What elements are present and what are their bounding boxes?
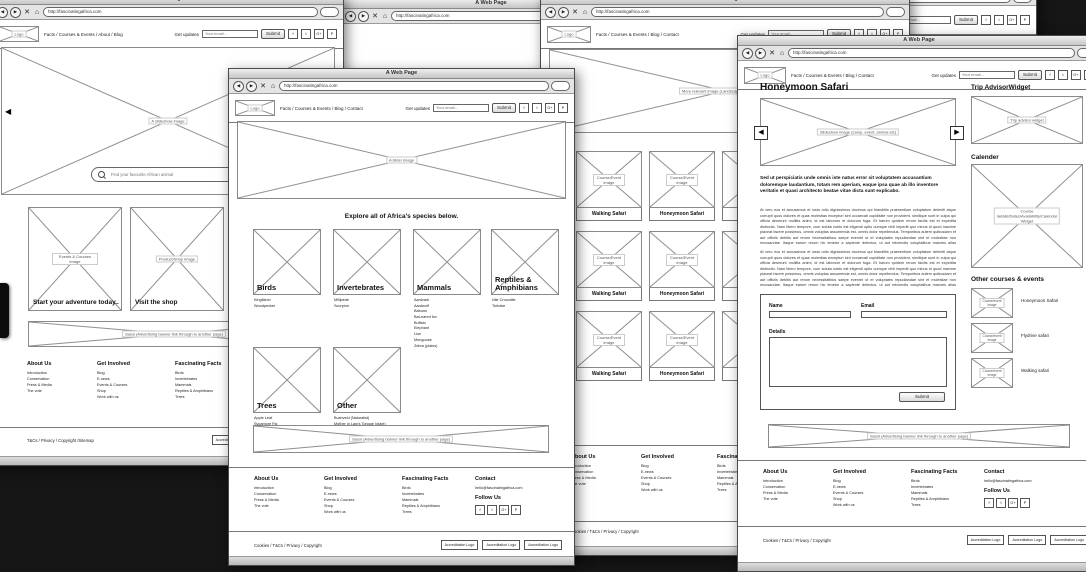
footer-heading: Get Involved: [833, 469, 911, 475]
course-title[interactable]: Honeymoon Safari: [649, 208, 715, 221]
legal-links[interactable]: T&Cs / Privacy / Copyright /Sitemap: [27, 438, 94, 443]
trip-advisor-caption: Trip advisor widget: [1007, 117, 1046, 124]
footer-links[interactable]: Introduction Conservation Press & Media …: [571, 464, 641, 488]
other-course-label[interactable]: Honeymoon Safari: [1021, 298, 1058, 303]
twitter-icon[interactable]: t: [532, 103, 542, 113]
card-label[interactable]: Visit the shop: [135, 299, 178, 306]
ad-banner-caption: Sasol (Advertising banner link through t…: [349, 436, 453, 443]
hero-caption: A slideshow image: [148, 118, 187, 125]
url-bar[interactable]: http://fascinatingafrica.com: [43, 7, 318, 17]
newsletter-signup: Get updates Submit f t G+ P: [931, 70, 1086, 81]
course-image: Course/Event image: [576, 151, 642, 208]
other-course-caption: Course/event image: [980, 298, 1005, 308]
search-icon: [98, 171, 105, 178]
other-course-item[interactable]: Course/event image Walking safari: [971, 358, 1083, 388]
browser-toolbar: ◀ ▶ ✕ ⌂ http://fascinatingafrica.com: [738, 46, 1086, 61]
pinterest-icon[interactable]: P: [1020, 15, 1030, 25]
category-links[interactable]: Aardvark Aardwolf Baboon Bat-eared fox B…: [414, 298, 437, 349]
footer-col-involved: Get Involved Blog E-news Events & Course…: [641, 454, 717, 493]
course-image-caption: Course/Event image: [593, 174, 625, 186]
other-course-item[interactable]: Course/event image Flydrive safari: [971, 323, 1083, 353]
other-course-label[interactable]: Flydrive safari: [1021, 333, 1049, 338]
species-category-mammals[interactable]: Mammals Aardvark Aardwolf Baboon Bat-ear…: [413, 229, 481, 295]
course-card[interactable]: Course/Event image Honeymoon Safari: [649, 311, 715, 368]
main-nav[interactable]: Facts / Courses & Events / Blog / Contac…: [280, 106, 363, 111]
course-image-caption: Course/Event image: [593, 334, 625, 346]
browser-toolbar: ◀ ▶ ✕ ⌂ http://fascinatingafrica.com: [0, 5, 343, 20]
forward-icon[interactable]: ▶: [10, 7, 21, 18]
category-name: Trees: [257, 402, 277, 410]
window-status-bar: [229, 556, 574, 565]
ad-banner[interactable]: Sasol (Advertising banner link through t…: [768, 424, 1070, 448]
footer-links[interactable]: Blog E-news Events & Courses Shop Work w…: [324, 486, 402, 515]
slideshow-next-button[interactable]: ▶: [950, 126, 964, 140]
logo-image: Logo: [235, 100, 275, 116]
twitter-icon[interactable]: t: [1058, 70, 1068, 80]
logo-image: Logo: [744, 67, 786, 84]
card-label[interactable]: Start your adventure today..: [33, 299, 119, 306]
footer-heading: About Us: [254, 476, 324, 482]
course-image: Course/Event image: [576, 231, 642, 288]
follow-us-heading: Follow Us: [984, 488, 1086, 494]
calendar-widget[interactable]: Course details/Dates/Availability/Calend…: [971, 164, 1083, 268]
footer-links[interactable]: Birds Invertebrates Mammals Reptiles & A…: [911, 479, 984, 508]
logo-image: Logo: [547, 26, 591, 43]
category-image: Invertebrates: [333, 229, 401, 295]
submit-button[interactable]: Submit: [1018, 70, 1042, 81]
accreditation-logo-button[interactable]: Accreditation Logo: [967, 535, 1005, 545]
legal-bar: Cookies / T&Cs / Privacy / Copyright Acc…: [738, 526, 1086, 553]
accreditation-logo-button[interactable]: Accreditation Logo: [1050, 535, 1086, 545]
body-paragraph: At vero eos et accusamus et iusto odio d…: [760, 208, 956, 246]
calendar-heading: Calender: [971, 154, 999, 161]
category-image: Other: [333, 347, 401, 413]
footer-heading: Fascinating Facts: [402, 476, 475, 482]
category-image: Mammals: [413, 229, 481, 295]
home-icon[interactable]: ⌂: [381, 12, 389, 21]
course-title[interactable]: Walking Safari: [576, 368, 642, 381]
card-caption: Events & Courses image: [52, 253, 98, 265]
footer-links[interactable]: Blog E-news Events & Courses Shop Work w…: [97, 371, 175, 400]
email-field[interactable]: [959, 71, 1015, 79]
back-icon[interactable]: ◀: [233, 81, 244, 92]
contact-email[interactable]: hello@fascinatingafrica.com: [475, 486, 574, 490]
card-caption: Product/Shop image: [156, 256, 198, 263]
details-textarea[interactable]: [769, 337, 947, 387]
footer-heading: Get Involved: [641, 454, 717, 460]
form-submit-button[interactable]: Submit: [899, 392, 945, 403]
url-bar[interactable]: http://fascinatingafrica.com: [279, 81, 549, 91]
footer-col-involved: Get Involved Blog E-news Events & Course…: [833, 469, 911, 508]
footer-heading: Contact: [984, 469, 1086, 475]
events-courses-card[interactable]: Events & Courses image Start your advent…: [28, 207, 122, 311]
category-name: Invertebrates: [337, 284, 384, 292]
other-course-label[interactable]: Walking safari: [1021, 368, 1049, 373]
shop-card[interactable]: Product/Shop image Visit the shop: [130, 207, 224, 311]
hero-caption: A slider image: [386, 157, 417, 164]
main-nav[interactable]: Facts / Courses & Events / Blog / Contac…: [596, 32, 679, 37]
browser-window-detail: A Web Page ◀ ▶ ✕ ⌂ http://fascinatingafr…: [737, 35, 1086, 572]
hero-slider-image: A slider image: [237, 121, 566, 199]
url-bar[interactable]: http://fascinatingafrica.com: [591, 7, 884, 17]
course-card[interactable]: Course/Event image Walking Safari: [576, 311, 642, 368]
twitter-icon[interactable]: t: [301, 29, 311, 39]
footer-links[interactable]: Birds Invertebrates Mammals Reptiles & A…: [402, 486, 475, 515]
logo-image: Logo: [0, 26, 39, 42]
species-category-birds[interactable]: Birds Kingfisher Woodpecker: [253, 229, 321, 295]
course-title[interactable]: Walking Safari: [576, 288, 642, 301]
footer-heading: Get Involved: [324, 476, 402, 482]
side-tab[interactable]: [0, 283, 9, 338]
accreditation-logo-button[interactable]: Accreditation Logo: [524, 540, 562, 550]
close-icon[interactable]: ✕: [571, 8, 579, 17]
googleplus-icon[interactable]: G+: [1007, 15, 1017, 25]
close-icon[interactable]: ✕: [23, 8, 31, 17]
footer-links[interactable]: Blog E-news Events & Courses Shop Work w…: [641, 464, 717, 493]
species-category-reptiles[interactable]: Reptiles & Amphibians Nile Crocodile Tor…: [491, 229, 559, 295]
legal-links[interactable]: Cookies / T&Cs / Privacy / Copyright: [571, 529, 639, 534]
updates-label: Get updates: [174, 32, 199, 37]
footer-col-contact: Contact hello@fascinatingafrica.com Foll…: [475, 476, 574, 515]
updates-label: Get updates: [405, 106, 430, 111]
page-title: Honeymoon Safari: [760, 82, 848, 93]
main-nav[interactable]: Facts / Courses & Events / Blog / Contac…: [791, 73, 874, 78]
course-title[interactable]: Honeymoon Safari: [649, 288, 715, 301]
forward-icon[interactable]: ▶: [558, 7, 569, 18]
updates-label: Get updates: [931, 73, 956, 78]
contact-email[interactable]: hello@fascinatingafrica.com: [984, 479, 1086, 483]
follow-us-heading: Follow Us: [475, 495, 574, 501]
species-heading: Explore all of Africa's species below.: [229, 213, 574, 220]
slideshow-caption: Slideshow image (camp, event, animal etc…: [817, 129, 899, 136]
facebook-icon[interactable]: f: [288, 29, 298, 39]
forward-icon[interactable]: ▶: [246, 81, 257, 92]
googleplus-icon[interactable]: G+: [1008, 498, 1018, 508]
footer-col-involved: Get Involved Blog E-news Events & Course…: [97, 361, 175, 400]
forward-icon[interactable]: ▶: [358, 11, 369, 22]
slideshow-prev-button[interactable]: ◀: [754, 126, 768, 140]
footer-col-about: About Us Introduction Conservation Press…: [763, 469, 833, 508]
facebook-icon[interactable]: f: [984, 498, 994, 508]
pinterest-icon[interactable]: P: [1020, 498, 1030, 508]
category-name: Reptiles & Amphibians: [495, 276, 558, 292]
search-input[interactable]: [109, 171, 236, 178]
accreditation-logo-button[interactable]: Accreditation Logo: [441, 540, 479, 550]
email-field[interactable]: [433, 104, 489, 112]
footer-heading: Contact: [475, 476, 574, 482]
site-footer: About Us Introduction Conservation Press…: [229, 467, 574, 515]
footer-col-facts: Fascinating Facts Birds Invertebrates Ma…: [402, 476, 475, 515]
category-image: Birds: [253, 229, 321, 295]
course-image: Course/Event image: [649, 311, 715, 368]
url-bar[interactable]: http://fascinatingafrica.com: [788, 48, 1075, 58]
facebook-icon[interactable]: f: [475, 505, 485, 515]
details-label: Details: [769, 329, 785, 335]
footer-links[interactable]: Introduction Conservation Press & Media …: [763, 479, 833, 503]
trip-advisor-widget[interactable]: Trip advisor widget: [971, 96, 1083, 144]
footer-heading: Fascinating Facts: [911, 469, 984, 475]
detail-slideshow-image: Slideshow image (camp, event, animal etc…: [760, 98, 956, 166]
course-card[interactable]: Course/Event image Walking Safari: [576, 231, 642, 288]
logo-caption: Logo: [562, 31, 577, 38]
window-status-bar: [738, 562, 1086, 571]
animal-search[interactable]: [91, 167, 243, 182]
footer-col-facts: Fascinating Facts Birds Invertebrates Ma…: [911, 469, 984, 508]
facebook-icon[interactable]: f: [1045, 70, 1055, 80]
twitter-icon[interactable]: t: [487, 505, 497, 515]
email-label: Email: [861, 303, 874, 309]
footer-col-about: About Us Introduction Conservation Press…: [254, 476, 324, 515]
site-header: Logo Facts / Courses & Events / About / …: [0, 20, 343, 49]
footer-heading: About Us: [27, 361, 97, 367]
other-course-image: Course/event image: [971, 288, 1013, 318]
window-titlebar[interactable]: A Web Page: [738, 36, 1086, 46]
home-icon[interactable]: ⌂: [778, 49, 786, 58]
email-field[interactable]: [861, 311, 947, 318]
main-nav[interactable]: Facts / Courses & Events / About / Blog: [44, 32, 123, 37]
ad-banner[interactable]: Sasol (Advertising banner link through t…: [253, 425, 549, 453]
course-title[interactable]: Walking Safari: [576, 208, 642, 221]
slideshow-prev-icon[interactable]: ◀: [5, 107, 11, 116]
ad-banner-caption: Sasol (Advertising banner link through t…: [867, 433, 971, 440]
site-footer: About Us Introduction Conservation Press…: [738, 460, 1086, 508]
category-image: Reptiles & Amphibians: [491, 229, 559, 295]
home-icon[interactable]: ⌂: [269, 82, 277, 91]
home-icon[interactable]: ⌂: [33, 8, 41, 17]
pinterest-icon[interactable]: P: [558, 103, 568, 113]
other-course-caption: Course/event image: [980, 333, 1005, 343]
course-card[interactable]: Course/Event image Honeymoon Safari: [649, 231, 715, 288]
logo-caption: Logo: [758, 72, 773, 79]
back-icon[interactable]: ◀: [742, 48, 753, 59]
pinterest-icon[interactable]: P: [511, 505, 521, 515]
footer-links[interactable]: Introduction Conservation Press & Media …: [254, 486, 324, 510]
intro-paragraph: Sed ut perspiciatis unde omnis iste natu…: [760, 176, 956, 196]
category-links[interactable]: Nile Crocodile Tortoise: [492, 298, 516, 309]
ad-banner-caption: Sasol (Advertising banner link through t…: [122, 331, 226, 338]
category-links[interactable]: Millipede Scorpion: [334, 298, 349, 309]
browser-toolbar: ◀ ▶ ✕ ⌂ http://fascinatingafrica.com: [541, 5, 909, 20]
footer-col-involved: Get Involved Blog E-news Events & Course…: [324, 476, 402, 515]
species-category-other[interactable]: Other Bushveld (Naturalist) Mother in La…: [333, 347, 401, 413]
course-image-caption: Course/Event image: [666, 254, 698, 266]
course-image-caption: Course/Event image: [666, 334, 698, 346]
googleplus-icon[interactable]: G+: [499, 505, 509, 515]
newsletter-signup: Get updates Submit f t G+ P: [405, 103, 568, 114]
calendar-caption: Course details/Dates/Availability/Calend…: [994, 208, 1060, 225]
course-image-caption: Course/Event image: [593, 254, 625, 266]
course-image: Course/Event image: [649, 231, 715, 288]
logo-caption: Logo: [248, 105, 263, 112]
forward-icon[interactable]: ▶: [755, 48, 766, 59]
other-courses-heading: Other courses & events: [971, 276, 1044, 283]
submit-button[interactable]: Submit: [954, 15, 978, 26]
other-course-item[interactable]: Course/event image Honeymoon Safari: [971, 288, 1083, 318]
category-name: Birds: [257, 284, 276, 292]
site-header: Logo Facts / Courses & Events / Blog / C…: [229, 94, 574, 123]
other-course-image: Course/event image: [971, 323, 1013, 353]
footer-heading: Get Involved: [97, 361, 175, 367]
course-card[interactable]: Course/Event image Honeymoon Safari: [649, 151, 715, 208]
legal-links[interactable]: Cookies / T&Cs / Privacy / Copyright: [763, 538, 831, 543]
search-oval[interactable]: [320, 7, 339, 17]
twitter-icon[interactable]: t: [996, 498, 1006, 508]
googleplus-icon[interactable]: G+: [314, 29, 324, 39]
window-titlebar[interactable]: A Web Page: [229, 69, 574, 79]
logo-caption: Logo: [12, 31, 27, 38]
legal-bar: Cookies / T&Cs / Privacy / Copyright Acc…: [229, 531, 574, 558]
other-course-caption: Course/event image: [980, 368, 1005, 378]
close-icon[interactable]: ✕: [371, 12, 379, 21]
category-name: Mammals: [417, 284, 451, 292]
footer-links[interactable]: Introduction Conservation Press & Media …: [27, 371, 97, 395]
home-icon[interactable]: ⌂: [581, 8, 589, 17]
accreditation-logo-button[interactable]: Accreditation Logo: [482, 540, 520, 550]
course-image: Course/Event image: [576, 311, 642, 368]
search-oval[interactable]: [886, 7, 905, 17]
course-image: Course/Event image: [649, 151, 715, 208]
name-field[interactable]: [769, 311, 851, 318]
facebook-icon[interactable]: f: [981, 15, 991, 25]
browser-window-species: A Web Page ◀ ▶ ✕ ⌂ http://fascinatingafr…: [228, 68, 575, 566]
pinterest-icon[interactable]: P: [327, 29, 337, 39]
close-icon[interactable]: ✕: [768, 49, 776, 58]
category-links[interactable]: Kingfisher Woodpecker: [254, 298, 275, 309]
course-title[interactable]: Honeymoon Safari: [649, 368, 715, 381]
footer-heading: About Us: [763, 469, 833, 475]
species-category-invertebrates[interactable]: Invertebrates Millipede Scorpion: [333, 229, 401, 295]
category-image: Trees: [253, 347, 321, 413]
submit-button[interactable]: Submit: [261, 29, 285, 40]
back-icon[interactable]: ◀: [345, 11, 356, 22]
name-label: Name: [769, 303, 783, 309]
close-icon[interactable]: ✕: [259, 82, 267, 91]
accreditation-logo-button[interactable]: Accreditation Logo: [1008, 535, 1046, 545]
body-paragraph: At vero eos et accusamus et iusto odio d…: [760, 250, 956, 288]
googleplus-icon[interactable]: G+: [545, 103, 555, 113]
newsletter-signup: Get updates Submit f t G+ P: [174, 29, 337, 40]
search-oval[interactable]: [1013, 0, 1032, 3]
facebook-icon[interactable]: f: [519, 103, 529, 113]
category-name: Other: [337, 402, 357, 410]
legal-links[interactable]: Cookies / T&Cs / Privacy / Copyright: [254, 543, 322, 548]
footer-col-about: About Us Introduction Conservation Press…: [571, 454, 641, 493]
footer-heading: About Us: [571, 454, 641, 460]
footer-links[interactable]: Blog E-news Events & Courses Shop Work w…: [833, 479, 911, 508]
back-icon[interactable]: ◀: [545, 7, 556, 18]
enquiry-form: Name Email Details Submit: [760, 294, 956, 410]
email-field[interactable]: [202, 30, 258, 38]
back-icon[interactable]: ◀: [0, 7, 8, 18]
twitter-icon[interactable]: t: [994, 15, 1004, 25]
footer-col-about: About Us Introduction Conservation Press…: [27, 361, 97, 400]
course-card[interactable]: Course/Event image Walking Safari: [576, 151, 642, 208]
trip-advisor-heading: Trip AdvisorWidget: [971, 84, 1030, 91]
submit-button[interactable]: Submit: [492, 103, 516, 114]
search-oval[interactable]: [551, 81, 570, 91]
browser-toolbar: ◀ ▶ ✕ ⌂ http://fascinatingafrica.com: [229, 79, 574, 94]
googleplus-icon[interactable]: G+: [1071, 70, 1081, 80]
other-course-image: Course/event image: [971, 358, 1013, 388]
footer-col-contact: Contact hello@fascinatingafrica.com Foll…: [984, 469, 1086, 508]
course-image-caption: Course/Event image: [666, 174, 698, 186]
species-category-trees[interactable]: Trees Apple Leaf Sycamore Fig: [253, 347, 321, 413]
search-oval[interactable]: [1077, 48, 1086, 58]
